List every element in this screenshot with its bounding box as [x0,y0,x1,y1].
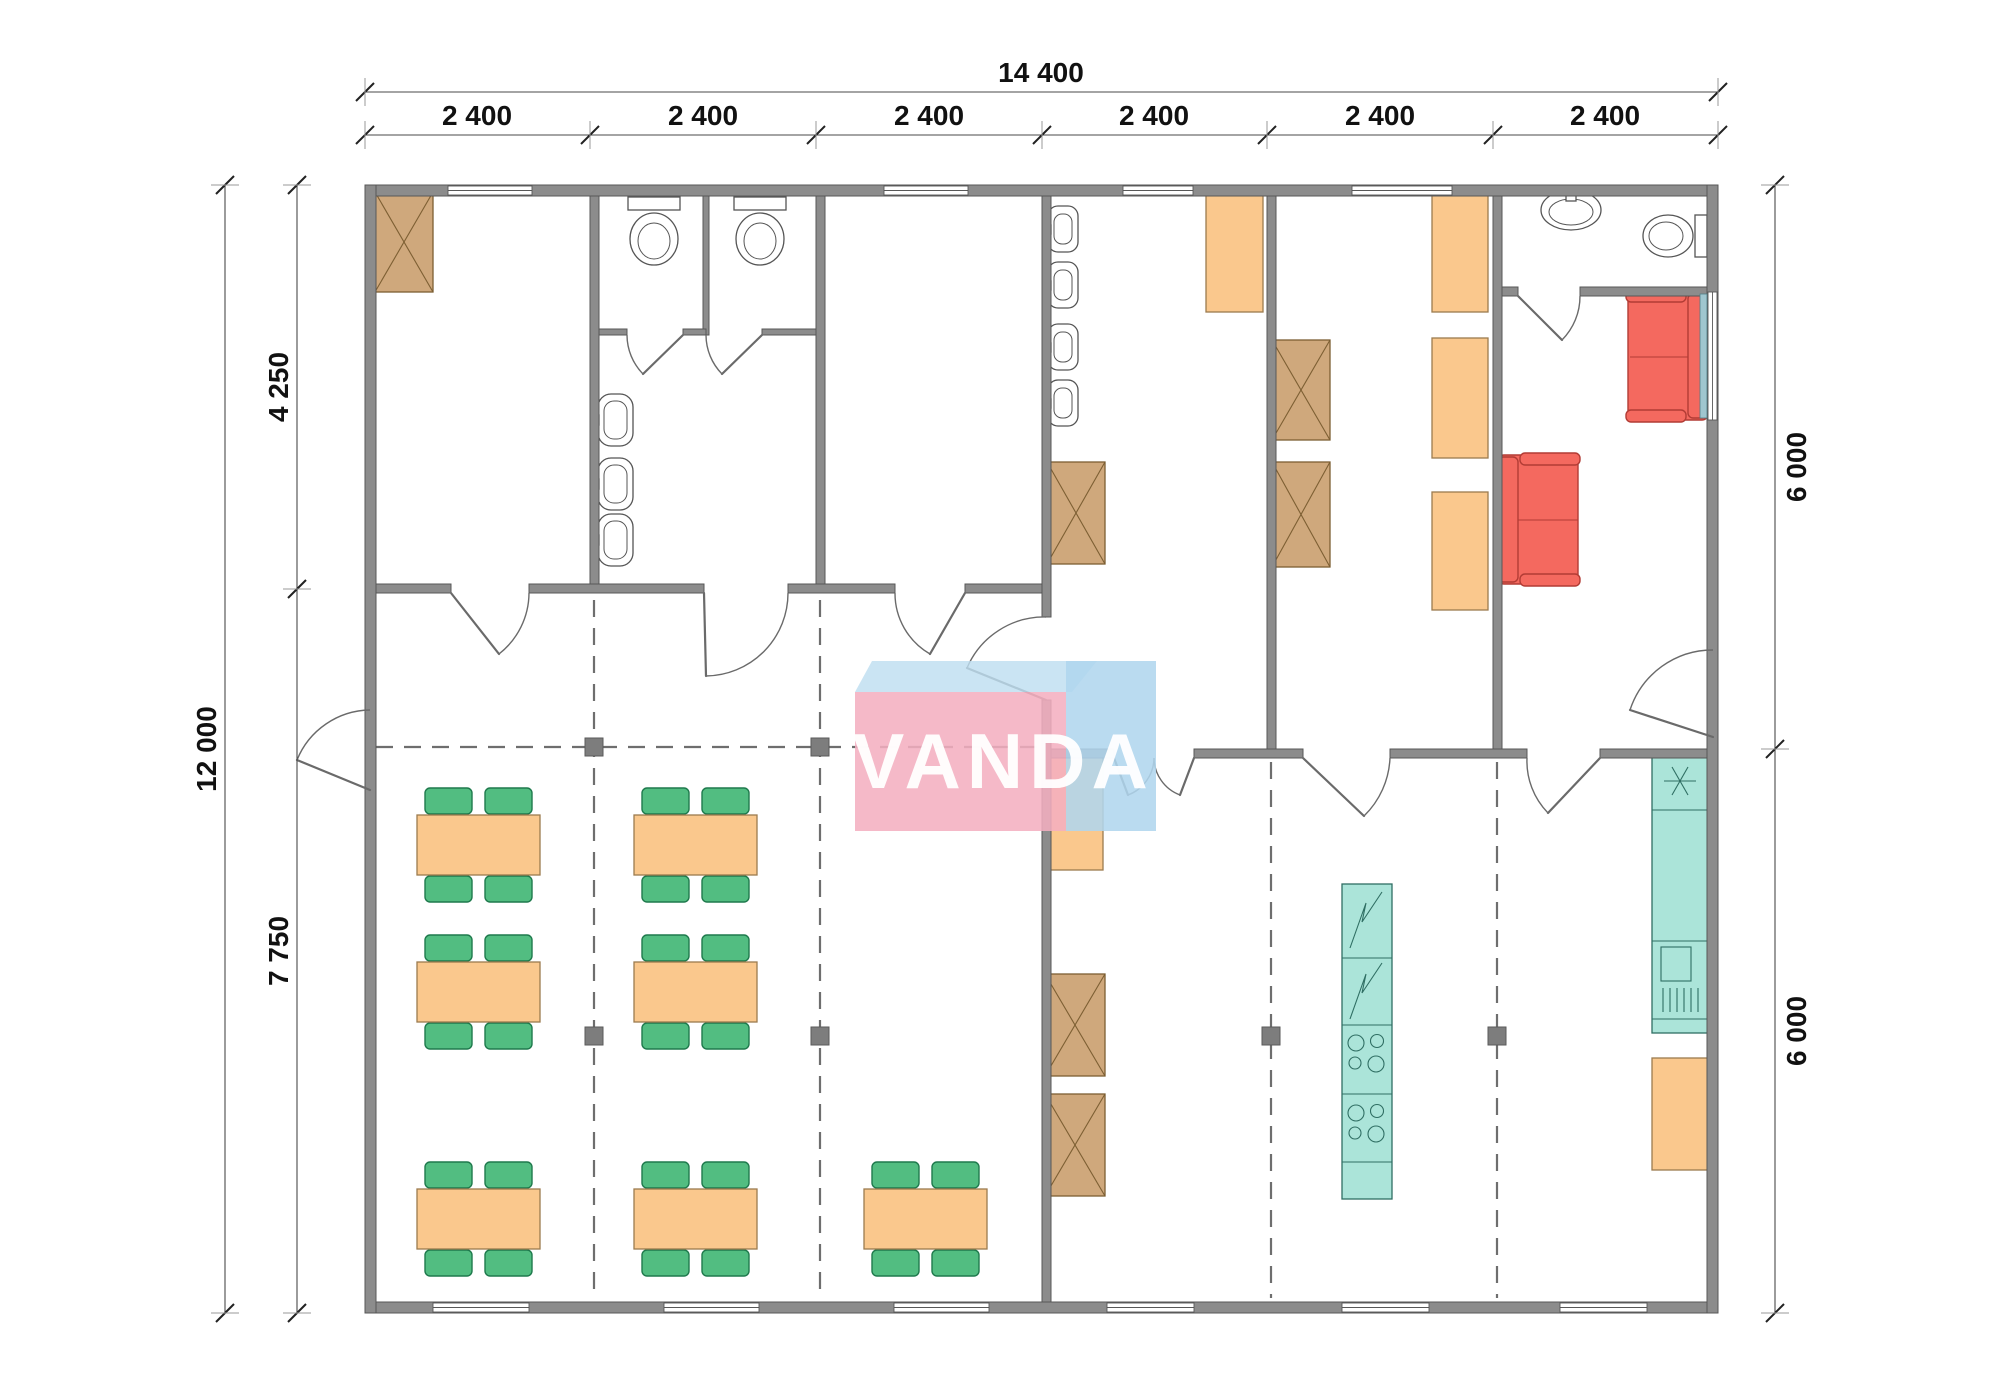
canteen-wardrobes [1045,974,1105,1196]
sofa [1626,290,1708,422]
door-icon [1303,758,1390,816]
dining-table-set [417,1162,540,1276]
dim-label-bay: 2 400 [894,100,964,131]
door-icon [704,593,788,676]
dim-label-total-height: 12 000 [191,706,222,792]
locker [1652,1058,1708,1170]
dim-label-total-width: 14 400 [998,57,1084,88]
dining-table-set [634,788,757,902]
floor-plan-drawing: 14 400 2 400 2 400 2 400 2 400 2 400 2 4… [0,0,2000,1380]
dining-table-set [634,1162,757,1276]
wall-segment [816,196,825,593]
door-icon [1518,296,1580,340]
vanda-watermark: VANDA [852,661,1156,831]
wall-segment [1194,749,1303,758]
sofa [1498,453,1580,586]
dim-label-bay: 2 400 [442,100,512,131]
storage-room-wardrobe [375,192,433,292]
wall-segment [1042,196,1051,617]
dim-label-right-split: 6 000 [1781,432,1812,502]
wall-segment [376,584,451,593]
wall-segment [683,329,706,335]
dim-label-left-split: 4 250 [263,352,294,422]
wall-segment [1493,196,1502,758]
wall-segment [1502,287,1518,296]
dim-label-right-split: 6 000 [1781,996,1812,1066]
door-icon [895,593,965,654]
locker [1206,192,1263,312]
wall-segment [1580,287,1707,296]
exterior-door-icon [297,710,370,790]
exterior-door-icon [1630,650,1713,737]
door-icon [451,593,529,654]
watermark-lid [855,661,1097,692]
wall-segment [590,196,599,593]
wall-segment [529,584,704,593]
dining-table-set [864,1162,987,1276]
wall-segment [365,1302,1718,1313]
dim-label-bay: 2 400 [1570,100,1640,131]
wc-toilet-icon [1643,215,1707,257]
watermark-text: VANDA [852,717,1154,805]
dim-label-bay: 2 400 [1119,100,1189,131]
dining-table-set [634,935,757,1049]
kitchen-island [1342,884,1392,1199]
wall-segment [1267,196,1276,758]
dim-label-left-split: 7 750 [263,916,294,986]
wall-segment [965,584,1042,593]
dining-table-set [417,788,540,902]
stall-door-icon [706,335,762,374]
wall-segment [365,185,1718,196]
dim-label-bay: 2 400 [668,100,738,131]
dining-table-set [417,935,540,1049]
locker-column [1432,192,1488,610]
wall-segment [762,329,816,335]
locker-room-wardrobes [1272,340,1330,567]
wall-segment [365,185,376,1313]
fridge-counter [1652,752,1708,1033]
wall-segment [1390,749,1527,758]
wall-segment [788,584,895,593]
urinal-room-wardrobe [1047,462,1105,564]
stall-door-icon [627,335,683,374]
glazed-panel [1700,294,1707,418]
floor-plan-canvas: 14 400 2 400 2 400 2 400 2 400 2 400 2 4… [0,0,2000,1380]
wall-segment [1600,749,1707,758]
wall-segment [703,196,709,335]
wall-segment [599,329,627,335]
dining-tables [417,788,987,1276]
door-icon [1527,758,1600,813]
dim-label-bay: 2 400 [1345,100,1415,131]
